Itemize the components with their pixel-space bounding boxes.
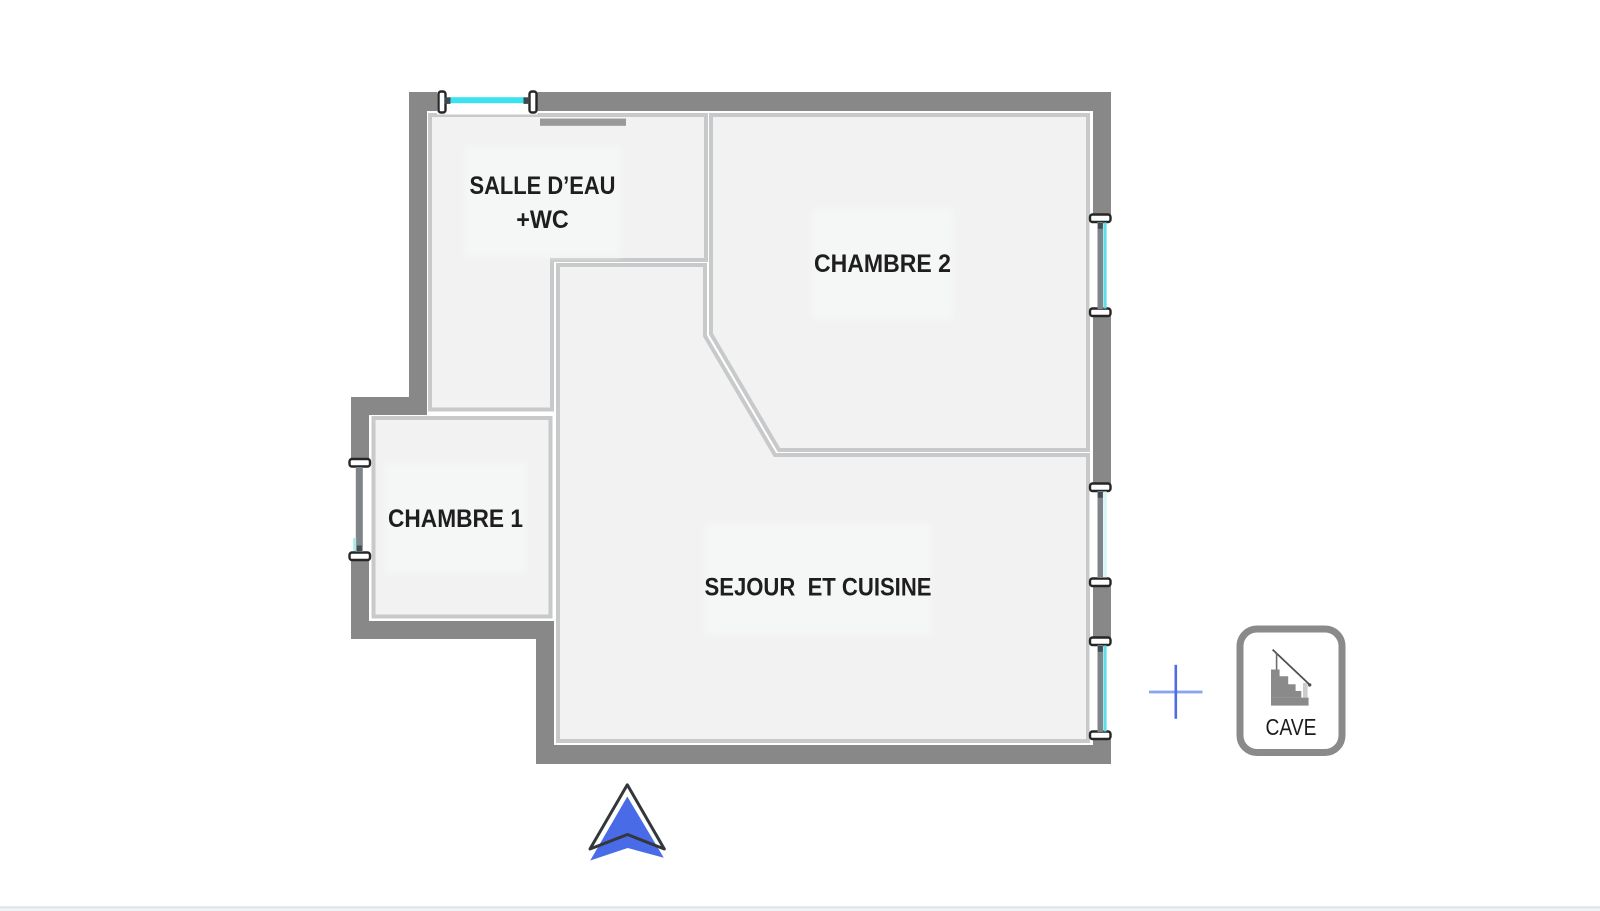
svg-text:SALLE D’EAU: SALLE D’EAU <box>470 172 616 200</box>
svg-text:CHAMBRE 2: CHAMBRE 2 <box>814 250 951 278</box>
svg-text:CHAMBRE 1: CHAMBRE 1 <box>388 505 523 533</box>
svg-text:SEJOUR ET CUISINE: SEJOUR ET CUISINE <box>705 574 932 602</box>
svg-text:+WC: +WC <box>516 206 569 234</box>
svg-text:CAVE: CAVE <box>1266 714 1317 740</box>
